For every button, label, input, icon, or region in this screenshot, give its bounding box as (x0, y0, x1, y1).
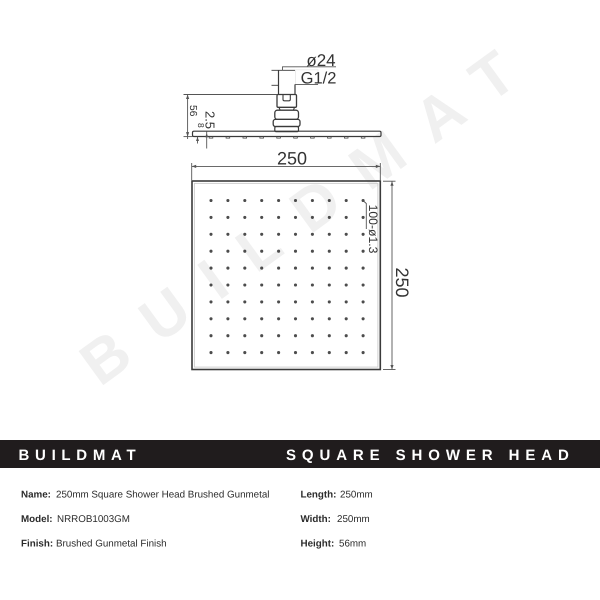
svg-text:250: 250 (277, 149, 307, 169)
svg-text:250: 250 (392, 267, 412, 297)
svg-text:SQUARE SHOWER HEAD: SQUARE SHOWER HEAD (286, 447, 575, 464)
svg-text:Width:250mm: Width:250mm (301, 514, 370, 525)
svg-text:Finish:Brushed Gunmetal Finish: Finish:Brushed Gunmetal Finish (21, 539, 167, 550)
svg-text:Height:56mm: Height:56mm (301, 539, 367, 550)
svg-text:Name:250mm Square Shower Head: Name:250mm Square Shower Head Brushed Gu… (21, 490, 269, 501)
svg-text:BUILDMAT: BUILDMAT (19, 447, 142, 464)
svg-text:2.5: 2.5 (202, 111, 217, 129)
svg-text:56: 56 (187, 105, 198, 117)
svg-text:100-ø1.3: 100-ø1.3 (366, 205, 380, 254)
svg-text:Length:250mm: Length:250mm (301, 490, 373, 501)
svg-text:Model:NRROB1003GM: Model:NRROB1003GM (21, 514, 130, 525)
